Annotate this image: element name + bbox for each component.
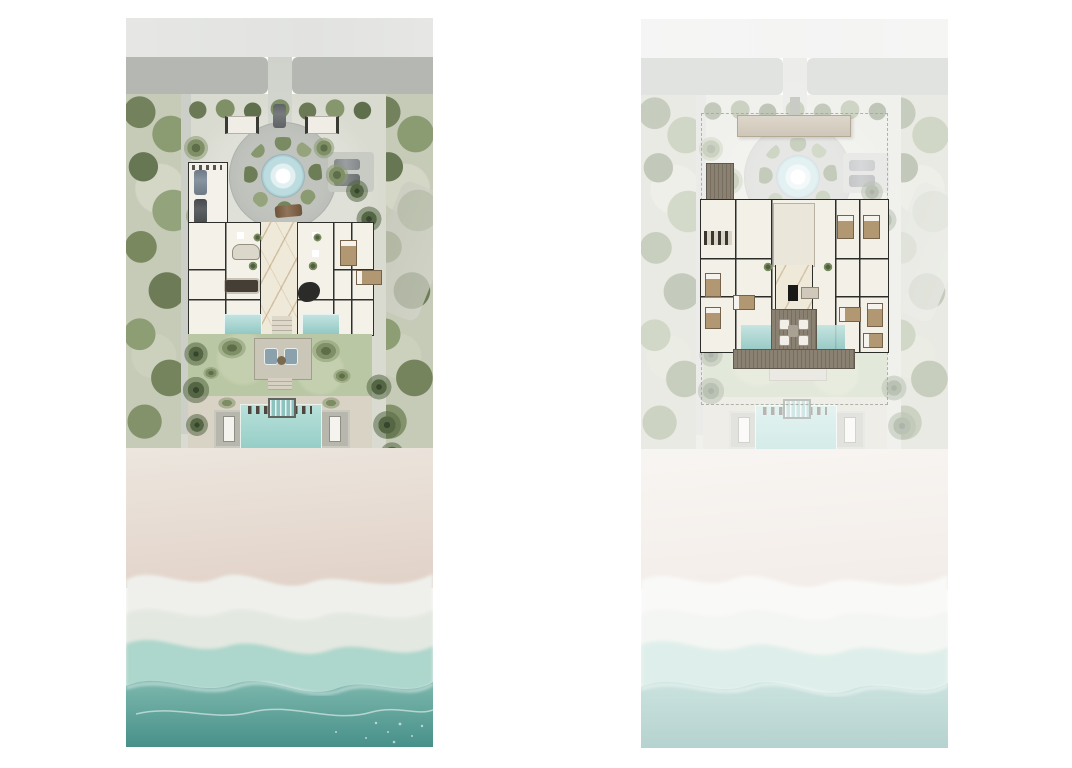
upper-floor-site-plan	[641, 19, 948, 748]
wardrobe	[704, 231, 732, 245]
planter	[762, 261, 774, 273]
pavilion-table	[277, 356, 286, 365]
bed	[867, 303, 883, 327]
ground-floor-site-plan	[126, 18, 433, 747]
bed	[839, 307, 861, 322]
canopy-support	[790, 97, 800, 117]
pavilion-chair	[284, 348, 298, 365]
reflecting-pool	[741, 325, 771, 349]
access-road	[126, 18, 433, 57]
reflecting-pool	[815, 325, 845, 349]
tree	[182, 134, 210, 162]
sofa	[232, 244, 260, 260]
media-console	[788, 285, 798, 301]
planter	[307, 260, 319, 272]
planter	[822, 261, 834, 273]
pavilion-chair	[264, 348, 278, 365]
bed	[863, 333, 883, 348]
bed	[863, 215, 880, 239]
reflecting-pool	[302, 314, 340, 336]
planter	[312, 232, 323, 243]
palm-tree	[362, 370, 396, 404]
entry-gate-left	[225, 116, 259, 134]
family-table	[801, 287, 819, 299]
roof-terrace-walkway	[733, 349, 855, 369]
entry-gate-right	[305, 116, 339, 134]
garden-tree	[216, 336, 248, 360]
fountain	[261, 154, 305, 198]
garaged-car	[194, 170, 207, 195]
bed	[837, 215, 854, 239]
spa	[268, 398, 296, 418]
planter	[247, 260, 259, 272]
dining-table	[226, 280, 258, 292]
pool-shrub	[320, 396, 342, 410]
car	[273, 104, 286, 128]
bed	[733, 295, 755, 310]
garaged-car	[194, 199, 207, 224]
palm-tree	[182, 410, 212, 440]
garden-shrub	[332, 368, 352, 384]
terrace-chair	[798, 335, 809, 346]
bed	[705, 273, 721, 297]
bed	[356, 270, 382, 285]
ocean-waves	[126, 518, 433, 747]
road-verge-left	[126, 57, 268, 94]
bed	[705, 307, 721, 329]
reflecting-pool	[224, 314, 262, 336]
planter	[252, 232, 263, 243]
bed	[340, 240, 357, 266]
terrace-table	[788, 325, 798, 337]
terrace-chair	[798, 319, 809, 330]
palm-tree	[180, 338, 212, 370]
garden-tree	[310, 338, 342, 364]
pool-cabana-right	[320, 410, 350, 448]
garden-steps	[268, 378, 292, 390]
entry-canopy	[737, 115, 851, 137]
road-verge-right	[292, 57, 433, 94]
tree	[312, 136, 336, 160]
palm-tree	[178, 372, 214, 408]
car	[275, 204, 303, 218]
forest-left	[126, 94, 188, 458]
page-canvas	[0, 0, 1072, 768]
stair-landing	[773, 203, 815, 267]
pool-shrub	[216, 396, 238, 410]
